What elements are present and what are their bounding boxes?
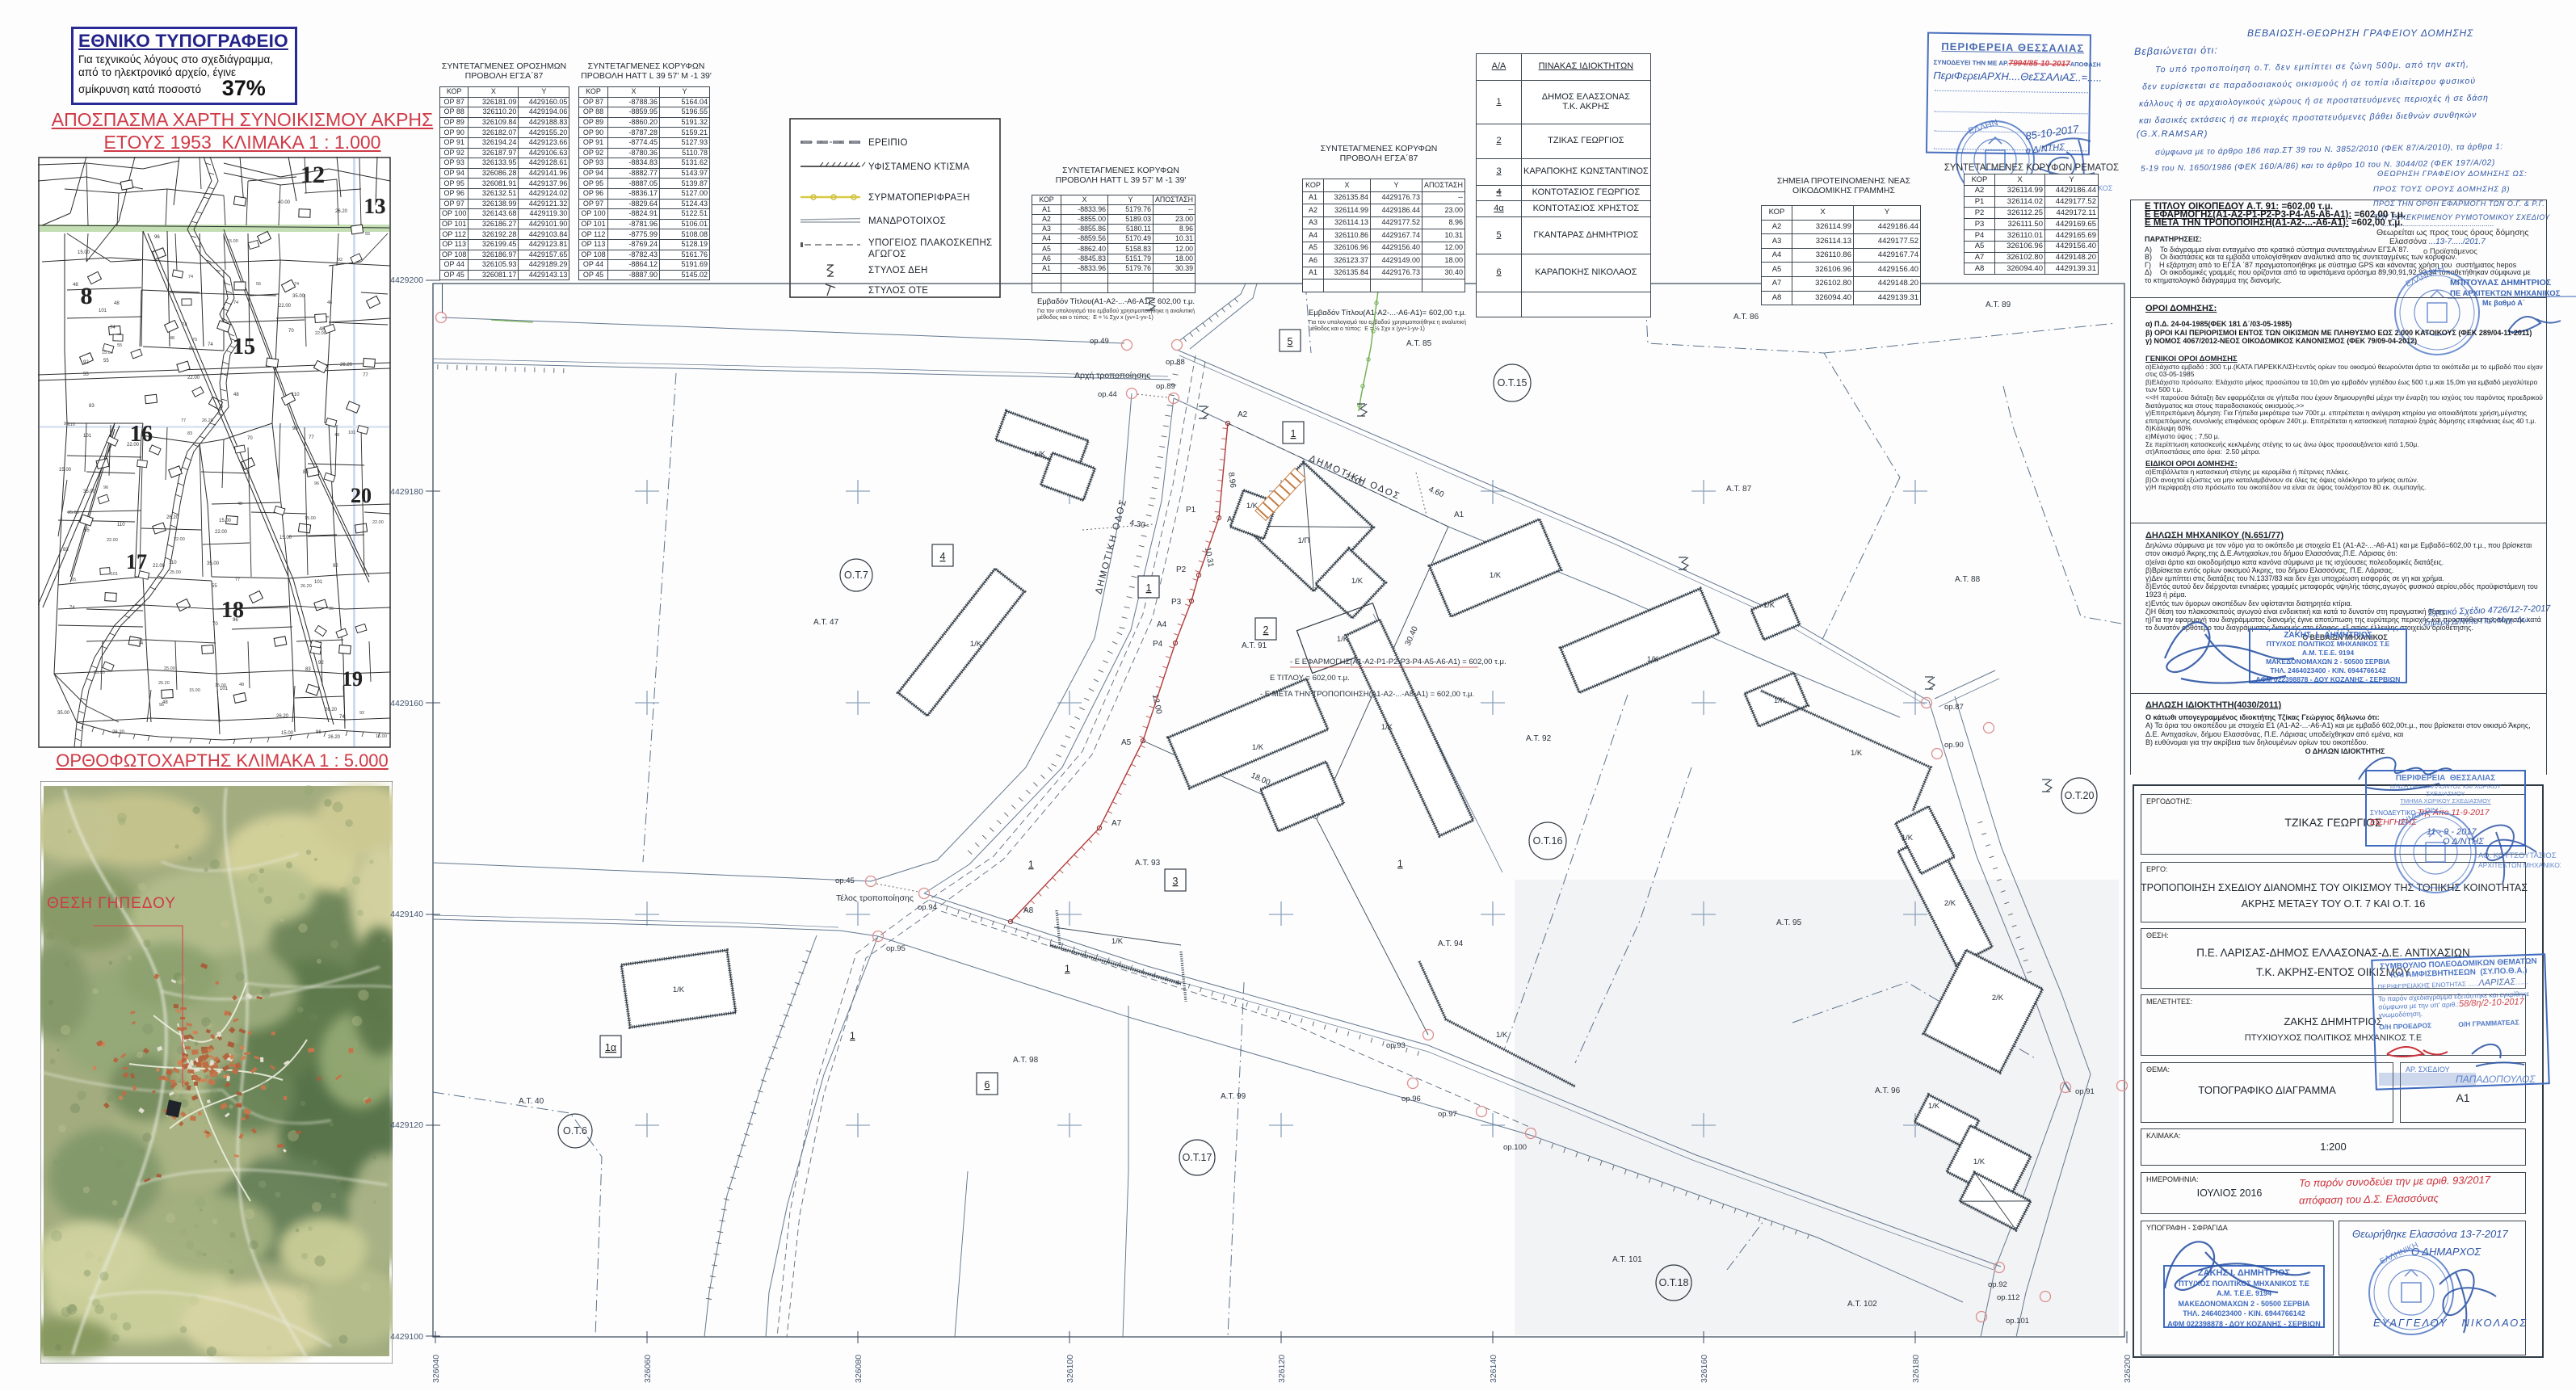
- svg-text:5: 5: [1288, 336, 1293, 347]
- svg-text:4429180: 4429180: [390, 487, 423, 497]
- svg-text:4: 4: [940, 551, 946, 562]
- svg-text:Α5: Α5: [1121, 738, 1132, 747]
- svg-text:1/Κ: 1/Κ: [1973, 1158, 1986, 1166]
- svg-text:1/Κ: 1/Κ: [1381, 723, 1393, 732]
- svg-text:ΜΠΙΤΟΥΛΑΣ ΔΗΜΗΤΡΙΟΣ: ΜΠΙΤΟΥΛΑΣ ΔΗΜΗΤΡΙΟΣ: [2450, 278, 2551, 288]
- svg-text:326160: 326160: [1700, 1355, 1709, 1383]
- svg-text:op.100: op.100: [1503, 1143, 1527, 1152]
- svg-text:op.44: op.44: [1098, 390, 1117, 399]
- svg-text:1/Π: 1/Π: [1298, 536, 1310, 545]
- svg-text:ΑΡΧΙΤΕΚΤΩΝ ΜΗΧΑΝΙΚΟΣ: ΑΡΧΙΤΕΚΤΩΝ ΜΗΧΑΝΙΚΟΣ: [2478, 861, 2561, 869]
- svg-text:Α.Τ. 96: Α.Τ. 96: [1875, 1086, 1901, 1095]
- svg-text:4.60: 4.60: [1427, 485, 1446, 500]
- svg-text:op.89: op.89: [1156, 382, 1175, 391]
- svg-text:1: 1: [1028, 859, 1034, 870]
- svg-text:4429140: 4429140: [390, 910, 423, 919]
- svg-text:Α8: Α8: [1023, 906, 1034, 915]
- svg-text:1: 1: [1065, 963, 1070, 974]
- svg-text:op.101: op.101: [2006, 1317, 2029, 1326]
- svg-text:op.96: op.96: [1401, 1095, 1421, 1103]
- svg-text:326100: 326100: [1065, 1355, 1075, 1383]
- svg-text:ΔΗΜΟΤΙΚΗ ΟΔΟΣ: ΔΗΜΟΤΙΚΗ ΟΔΟΣ: [1094, 498, 1128, 595]
- svg-text:326200: 326200: [2123, 1355, 2133, 1383]
- svg-text:Α.Τ. 47: Α.Τ. 47: [813, 618, 839, 627]
- svg-text:4429160: 4429160: [390, 699, 423, 708]
- svg-text:1/Κ: 1/Κ: [1351, 577, 1364, 586]
- svg-text:Ο.Τ.7: Ο.Τ.7: [844, 569, 868, 581]
- svg-text:1/Κ: 1/Κ: [1112, 937, 1124, 946]
- svg-text:- Ε ΕΦΑΡΜΟΓΗΣ(Α1-Α2-Ρ1-Ρ2-Ρ3-Ρ: - Ε ΕΦΑΡΜΟΓΗΣ(Α1-Α2-Ρ1-Ρ2-Ρ3-Ρ4-Α5-Α6-Α1…: [1290, 658, 1507, 666]
- svg-text:1: 1: [1397, 858, 1403, 869]
- svg-text:1/Κ: 1/Κ: [1034, 450, 1046, 459]
- svg-text:ΕΛΛΗΝΙΚΗ: ΕΛΛΗΝΙΚΗ: [2405, 264, 2446, 289]
- svg-text:1/Κ: 1/Κ: [1902, 834, 1914, 843]
- svg-text:Α.Τ. 87: Α.Τ. 87: [1726, 485, 1752, 494]
- svg-text:- Ε ΜΕΤΑ ΤΗΝ ΤΡΟΠΟΠΟΙΗΣΗ(Α1-Α: - Ε ΜΕΤΑ ΤΗΝ ΤΡΟΠΟΠΟΙΗΣΗ(Α1-Α2-...-Α8-Α1…: [1260, 690, 1474, 699]
- svg-text:op.88: op.88: [1166, 358, 1185, 367]
- svg-text:4429200: 4429200: [390, 275, 423, 285]
- svg-text:Ρ1: Ρ1: [1186, 506, 1196, 515]
- svg-text:Α.Τ. 101: Α.Τ. 101: [1612, 1255, 1642, 1264]
- svg-text:op.112: op.112: [1997, 1293, 2019, 1302]
- svg-text:1/Κ: 1/Κ: [1490, 571, 1502, 580]
- svg-text:18.00: 18.00: [1250, 771, 1272, 788]
- svg-text:Ρ2: Ρ2: [1176, 565, 1187, 574]
- svg-text:3: 3: [1173, 876, 1179, 887]
- svg-text:326040: 326040: [431, 1355, 441, 1383]
- svg-text:Α.Τ. 89: Α.Τ. 89: [1986, 300, 2011, 309]
- svg-text:Α.Τ. 40: Α.Τ. 40: [519, 1097, 544, 1106]
- svg-text:Ο.Τ.15: Ο.Τ.15: [1498, 377, 1528, 389]
- svg-text:ΔΗΜΟΚΡΑΤΙΑ: ΔΗΜΟΚΡΑΤΙΑ: [2397, 808, 2448, 828]
- svg-text:1: 1: [1146, 582, 1152, 594]
- svg-text:Α1: Α1: [1454, 511, 1464, 519]
- svg-text:op.87: op.87: [1944, 703, 1964, 712]
- svg-text:op.45: op.45: [835, 876, 855, 885]
- svg-text:Ο.Τ.6: Ο.Τ.6: [563, 1125, 587, 1137]
- svg-text:Α.Τ. 102: Α.Τ. 102: [1847, 1300, 1877, 1309]
- svg-text:op.91: op.91: [2075, 1087, 2095, 1096]
- svg-text:326060: 326060: [643, 1355, 653, 1383]
- svg-text:1/Κ: 1/Κ: [1647, 655, 1659, 664]
- svg-text:2/Κ: 2/Κ: [1944, 899, 1956, 908]
- svg-text:8.96: 8.96: [1226, 472, 1238, 489]
- svg-text:Α2: Α2: [1238, 410, 1248, 419]
- svg-text:2: 2: [1263, 624, 1269, 636]
- svg-text:326180: 326180: [1911, 1355, 1921, 1383]
- svg-text:1/Κ: 1/Κ: [1851, 749, 1863, 758]
- svg-text:op.93: op.93: [1386, 1041, 1406, 1050]
- svg-text:30.40: 30.40: [1404, 624, 1420, 647]
- svg-text:1/Κ: 1/Κ: [970, 640, 982, 649]
- svg-text:326080: 326080: [854, 1355, 864, 1383]
- svg-text:Α.Τ. 95: Α.Τ. 95: [1776, 918, 1802, 927]
- svg-text:op.49: op.49: [1090, 337, 1109, 346]
- svg-text:4429100: 4429100: [390, 1332, 423, 1342]
- svg-text:326140: 326140: [1489, 1355, 1498, 1383]
- svg-text:Ρ3: Ρ3: [1171, 598, 1182, 607]
- svg-text:4.30: 4.30: [1128, 519, 1146, 530]
- svg-text:Α4: Α4: [1157, 620, 1167, 629]
- svg-text:1/Κ: 1/Κ: [1928, 1102, 1940, 1111]
- svg-text:Ο.Τ.16: Ο.Τ.16: [1533, 835, 1563, 847]
- svg-text:10.31: 10.31: [1203, 547, 1215, 569]
- svg-text:1/Κ: 1/Κ: [1252, 743, 1264, 752]
- svg-text:Α.Τ. 93: Α.Τ. 93: [1135, 859, 1161, 868]
- svg-text:Α.Τ. 99: Α.Τ. 99: [1221, 1092, 1246, 1101]
- svg-text:Α7: Α7: [1112, 819, 1122, 828]
- svg-text:Α.Τ. 88: Α.Τ. 88: [1955, 575, 1981, 584]
- svg-text:Α.Τ. 92: Α.Τ. 92: [1526, 734, 1552, 743]
- svg-text:Ο.Τ.20: Ο.Τ.20: [2065, 790, 2095, 801]
- svg-text:Α.Τ. 91: Α.Τ. 91: [1242, 641, 1267, 650]
- svg-text:Α.Τ. 86: Α.Τ. 86: [1733, 313, 1759, 321]
- svg-text:Ο.Τ.17: Ο.Τ.17: [1183, 1152, 1212, 1163]
- svg-text:ΕΛΛΗΝΙΚΗ: ΕΛΛΗΝΙΚΗ: [2379, 1241, 2420, 1267]
- svg-text:1/Κ: 1/Κ: [1496, 1031, 1508, 1040]
- svg-text:6: 6: [985, 1079, 990, 1091]
- svg-text:Α.Τ. 98: Α.Τ. 98: [1013, 1056, 1039, 1065]
- svg-text:op.94: op.94: [918, 903, 937, 912]
- svg-text:op.92: op.92: [1988, 1280, 2007, 1289]
- svg-text:1/Κ: 1/Κ: [673, 985, 685, 994]
- svg-text:2/Κ: 2/Κ: [1992, 994, 2004, 1002]
- svg-text:Ο.Τ.18: Ο.Τ.18: [1659, 1277, 1689, 1288]
- svg-text:1α: 1α: [605, 1042, 616, 1053]
- svg-text:Α.Τ. 85: Α.Τ. 85: [1406, 339, 1432, 348]
- svg-text:Τέλος τροποποίησης: Τέλος τροποποίησης: [836, 893, 914, 903]
- svg-text:326120: 326120: [1277, 1355, 1287, 1383]
- svg-text:ΑΘ. ΚΟΥΤΣΟΥΤΑΣΙΟΣ: ΑΘ. ΚΟΥΤΣΟΥΤΑΣΙΟΣ: [2478, 851, 2557, 860]
- svg-text:1/Κ: 1/Κ: [1763, 601, 1775, 610]
- svg-text:Ρ4: Ρ4: [1153, 640, 1163, 649]
- svg-text:op.95: op.95: [886, 944, 906, 953]
- svg-text:Α.Τ. 94: Α.Τ. 94: [1438, 939, 1464, 948]
- svg-text:4429120: 4429120: [390, 1120, 423, 1130]
- svg-text:op.90: op.90: [1944, 741, 1964, 750]
- svg-text:op.97: op.97: [1438, 1110, 1457, 1119]
- svg-text:1: 1: [1291, 428, 1296, 439]
- svg-text:Αρχή τροποποίησης: Αρχή τροποποίησης: [1074, 371, 1150, 380]
- svg-text:Ε ΤΙΤΛΟΥ = 602,00 τ.μ.: Ε ΤΙΤΛΟΥ = 602,00 τ.μ.: [1270, 674, 1350, 683]
- svg-text:1: 1: [850, 1030, 855, 1041]
